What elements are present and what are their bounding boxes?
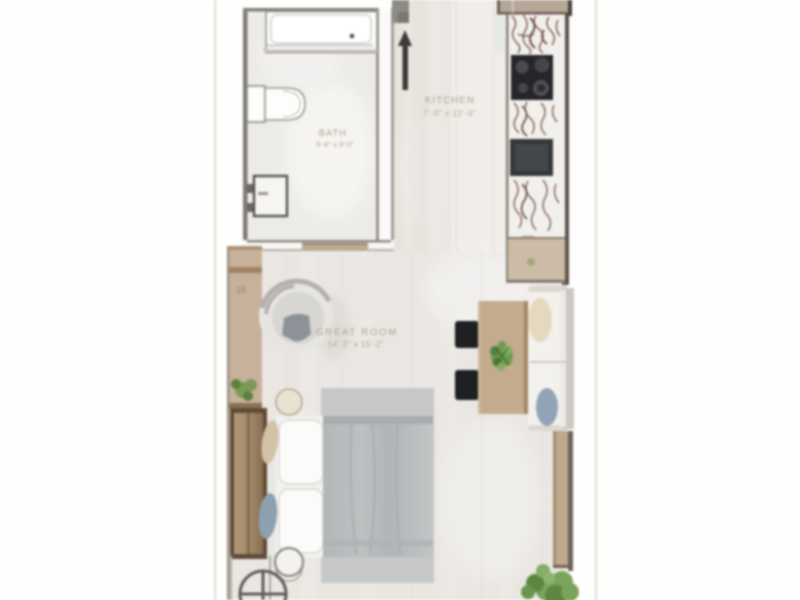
svg-text:GREAT ROOM: GREAT ROOM — [316, 327, 398, 338]
svg-text:5'-6" x 9'-0": 5'-6" x 9'-0" — [316, 140, 354, 149]
svg-text:KITCHEN: KITCHEN — [425, 95, 475, 106]
svg-text:14'-2" x 15'-2": 14'-2" x 15'-2" — [328, 340, 385, 349]
svg-text:7'-0" x 12'-0": 7'-0" x 12'-0" — [423, 109, 476, 118]
svg-text:BATH: BATH — [319, 128, 347, 138]
svg-text:15: 15 — [236, 285, 246, 295]
